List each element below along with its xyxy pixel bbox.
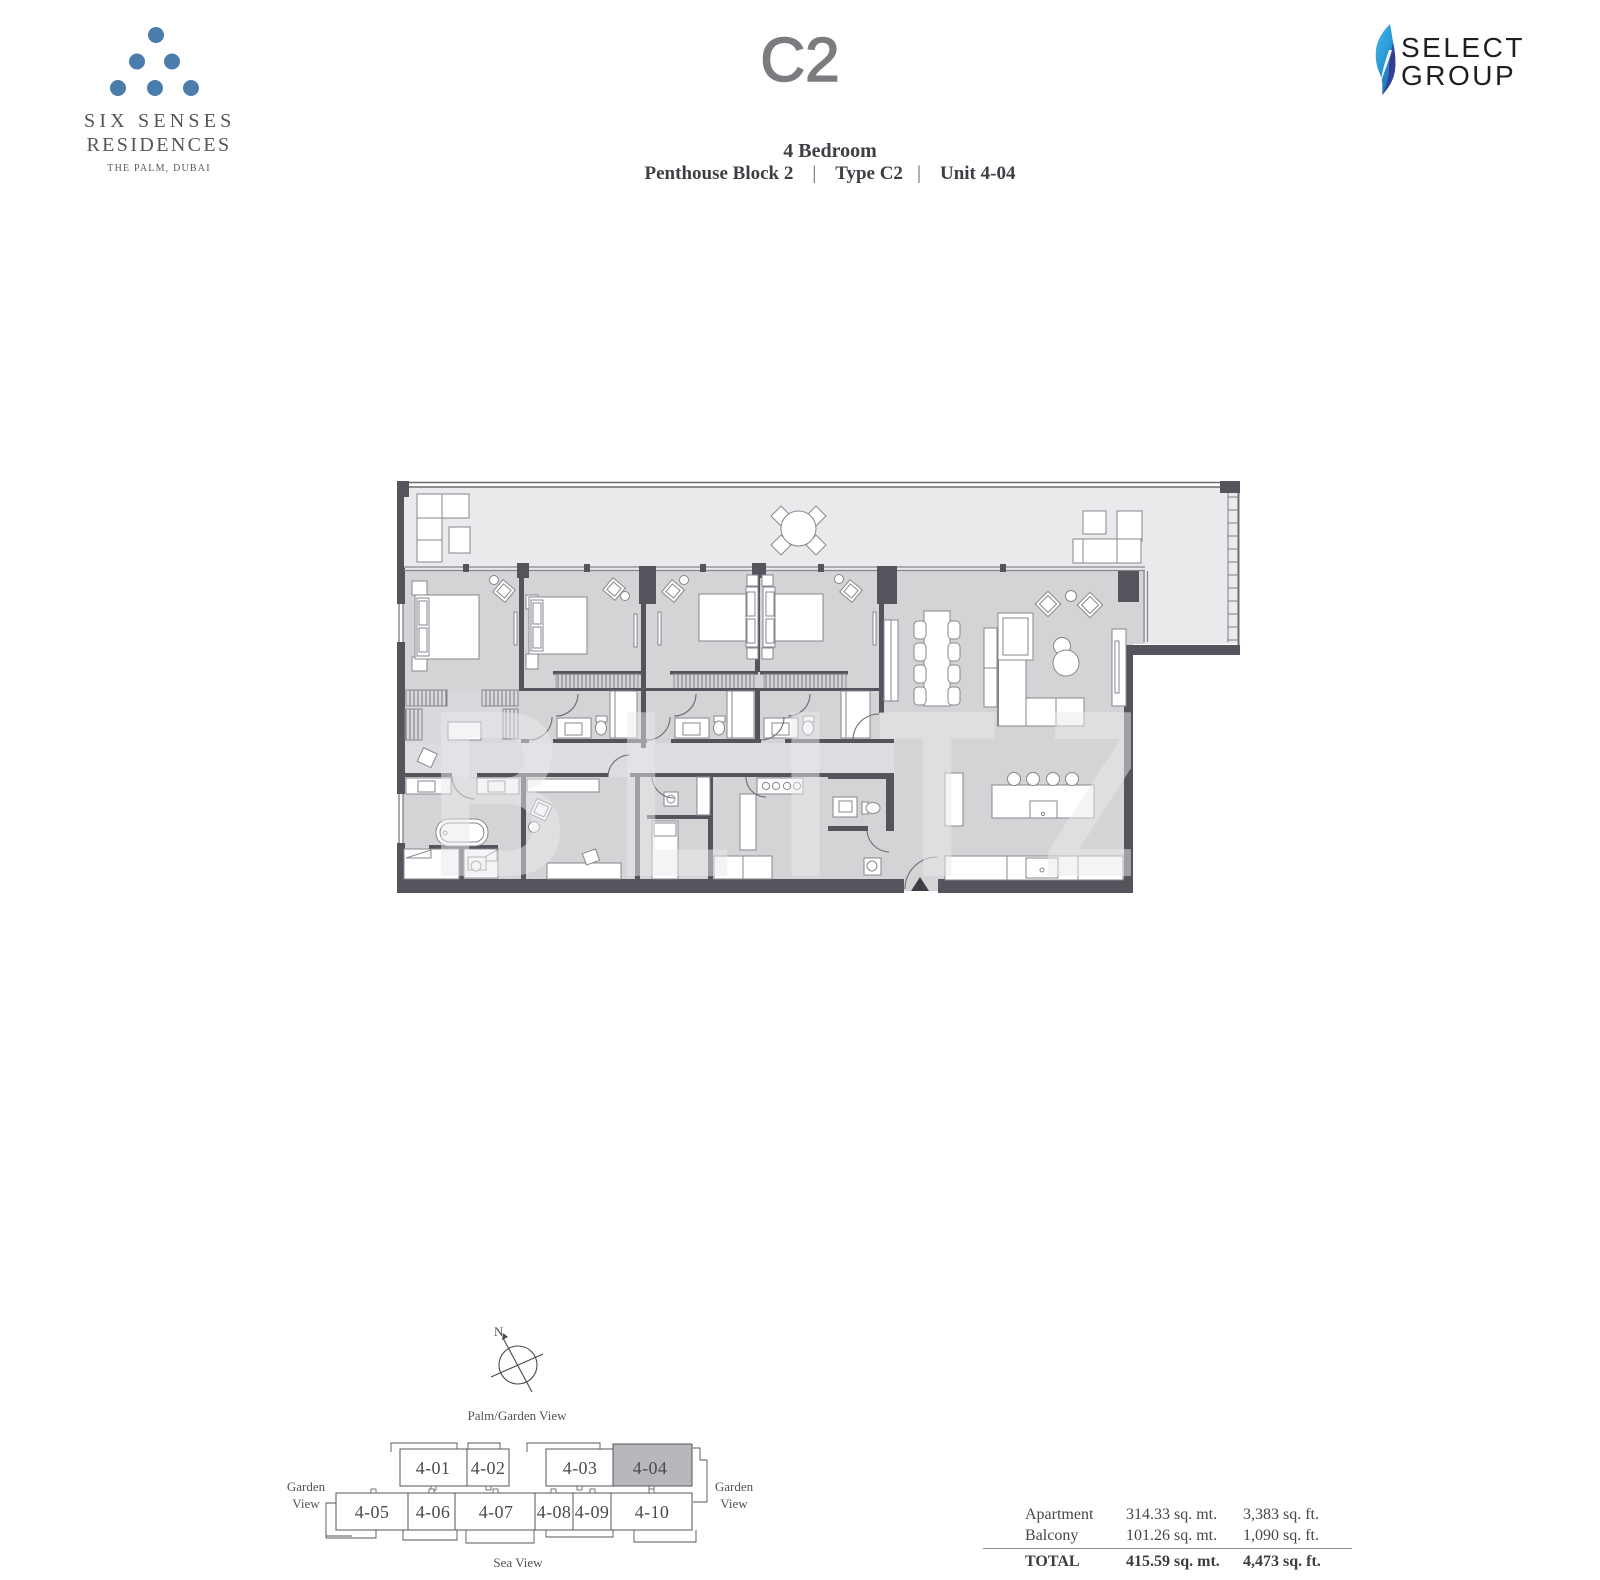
svg-text:4-01: 4-01 <box>416 1458 451 1478</box>
svg-text:4-10: 4-10 <box>635 1502 670 1522</box>
svg-text:4-05: 4-05 <box>355 1502 390 1522</box>
svg-text:BLITZ: BLITZ <box>428 662 1206 910</box>
svg-text:N: N <box>494 1324 504 1339</box>
svg-text:4-06: 4-06 <box>416 1502 451 1522</box>
svg-text:4-07: 4-07 <box>479 1502 514 1522</box>
svg-text:4-02: 4-02 <box>471 1458 506 1478</box>
svg-text:4-03: 4-03 <box>563 1458 598 1478</box>
svg-text:4-08: 4-08 <box>537 1502 572 1522</box>
svg-text:4-04: 4-04 <box>633 1458 668 1478</box>
svg-text:4-09: 4-09 <box>575 1502 610 1522</box>
